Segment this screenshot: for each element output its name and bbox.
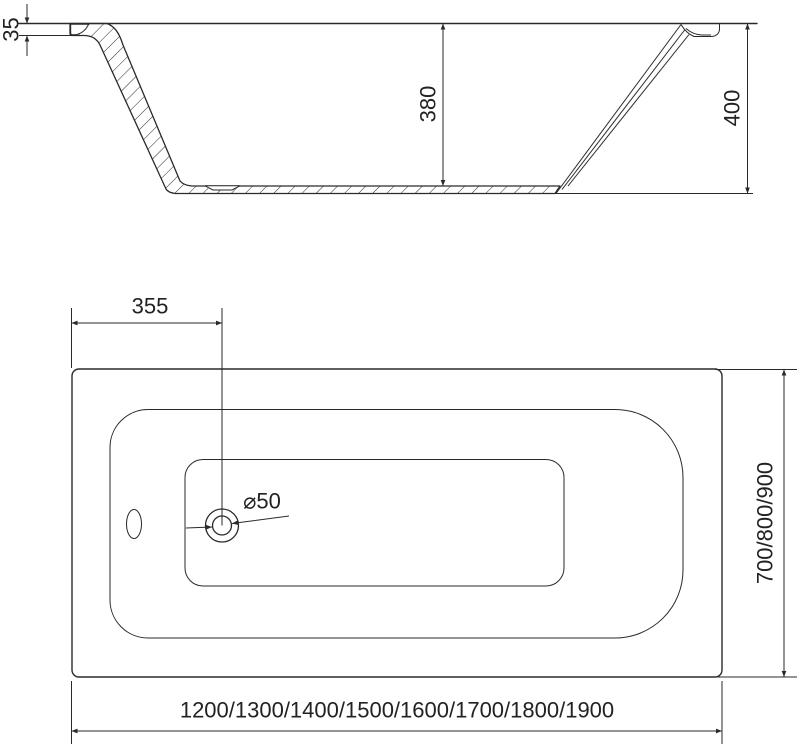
section-right-wall-edge-outer: [556, 25, 681, 194]
plan-view: 355 ⌀50 700/800/900 1200/1300/1400/1500/…: [72, 294, 798, 745]
dimension-internal-depth: 380: [416, 24, 444, 187]
dimension-length-options: 1200/1300/1400/1500/1600/1700/1800/1900: [72, 681, 723, 744]
dim-label-rim-thickness: 35: [0, 17, 24, 41]
section-right-wall-edge-middle: [562, 30, 685, 190]
dimension-rim-thickness: 35: [0, 4, 27, 56]
bathtub-technical-drawing: 35 380 400 355: [0, 0, 800, 748]
dim-dia-arrow-left: [186, 527, 212, 528]
plan-basin-floor: [185, 460, 564, 587]
dimension-total-height: 400: [720, 24, 748, 194]
plan-outer-rim: [72, 369, 722, 677]
dimension-width-options: 700/800/900: [715, 370, 797, 678]
dim-label-total-height: 400: [720, 90, 745, 127]
dim-label-width-options: 700/800/900: [753, 462, 778, 584]
plan-overflow-hole: [127, 510, 142, 539]
dim-label-length-options: 1200/1300/1400/1500/1600/1700/1800/1900: [180, 698, 614, 723]
dim-label-internal-depth: 380: [416, 86, 441, 123]
dim-dia-leader: [232, 516, 289, 524]
plan-inner-rim: [110, 410, 683, 639]
drawing-svg: 35 380 400 355: [0, 0, 800, 748]
section-wall-cross-section: [70, 24, 560, 194]
section-right-wall-edge-inner: [568, 35, 689, 187]
dim-label-drain-diameter: ⌀50: [243, 489, 281, 514]
dim-label-drain-offset: 355: [132, 294, 169, 319]
section-view: 35 380 400: [0, 4, 757, 194]
